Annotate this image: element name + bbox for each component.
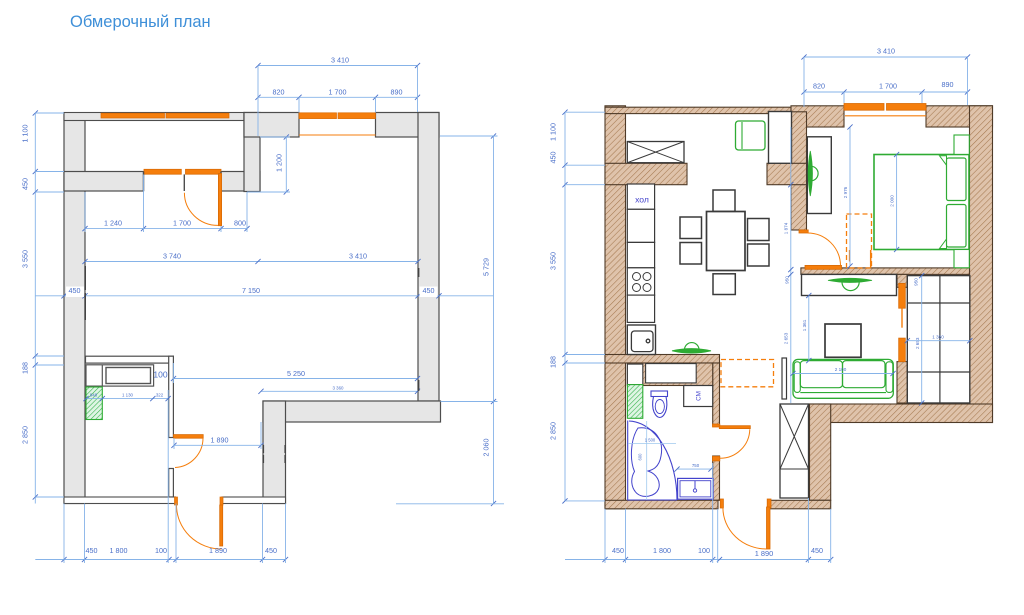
- svg-text:450: 450: [612, 546, 624, 555]
- svg-text:5 250: 5 250: [287, 369, 305, 378]
- svg-text:450: 450: [265, 546, 277, 555]
- svg-text:322: 322: [156, 393, 164, 398]
- svg-text:820: 820: [273, 88, 285, 97]
- svg-text:2 850: 2 850: [21, 426, 30, 444]
- svg-text:СМ: СМ: [696, 391, 703, 401]
- svg-text:5 729: 5 729: [482, 258, 491, 276]
- svg-text:1 800: 1 800: [110, 546, 128, 555]
- svg-text:3 410: 3 410: [877, 47, 895, 56]
- svg-text:948: 948: [90, 393, 98, 398]
- svg-text:3 740: 3 740: [163, 252, 181, 261]
- svg-text:1 500: 1 500: [645, 438, 656, 443]
- svg-text:450: 450: [69, 286, 81, 295]
- svg-text:450: 450: [423, 286, 435, 295]
- svg-text:1 130: 1 130: [122, 393, 134, 398]
- svg-text:950: 950: [914, 278, 919, 286]
- svg-text:1 700: 1 700: [879, 82, 897, 91]
- svg-text:450: 450: [86, 546, 98, 555]
- svg-text:188: 188: [549, 356, 558, 368]
- svg-text:750: 750: [692, 463, 700, 468]
- svg-text:2 850: 2 850: [549, 422, 558, 440]
- svg-text:1 800: 1 800: [653, 546, 671, 555]
- svg-text:890: 890: [942, 80, 954, 89]
- svg-text:100: 100: [155, 546, 167, 555]
- svg-text:2 100: 2 100: [835, 367, 847, 372]
- svg-text:Обмерочный план: Обмерочный план: [70, 13, 211, 31]
- svg-text:3 550: 3 550: [549, 252, 558, 270]
- svg-text:2 653: 2 653: [784, 332, 789, 344]
- svg-text:3 360: 3 360: [333, 385, 345, 390]
- svg-text:хол: хол: [635, 195, 649, 205]
- svg-text:2 060: 2 060: [482, 439, 491, 457]
- svg-text:450: 450: [21, 178, 30, 190]
- svg-text:890: 890: [391, 88, 403, 97]
- svg-text:1 700: 1 700: [329, 88, 347, 97]
- svg-text:2 976: 2 976: [843, 186, 848, 198]
- svg-text:950: 950: [785, 276, 790, 284]
- svg-text:188: 188: [21, 362, 30, 374]
- svg-text:2 000: 2 000: [890, 195, 895, 207]
- svg-text:1 240: 1 240: [104, 219, 122, 228]
- svg-text:1 890: 1 890: [209, 546, 227, 555]
- svg-text:1 890: 1 890: [211, 435, 229, 444]
- svg-text:820: 820: [813, 82, 825, 91]
- svg-text:1 361: 1 361: [802, 319, 807, 331]
- svg-text:3 550: 3 550: [21, 250, 30, 268]
- svg-text:100: 100: [698, 546, 710, 555]
- svg-text:1 100: 1 100: [549, 123, 558, 141]
- svg-text:450: 450: [549, 152, 558, 164]
- svg-text:1 890: 1 890: [755, 549, 774, 558]
- svg-text:1 100: 1 100: [21, 125, 30, 143]
- svg-text:3 410: 3 410: [331, 56, 349, 65]
- svg-text:1 700: 1 700: [173, 219, 191, 228]
- svg-text:100: 100: [153, 370, 167, 380]
- svg-text:1 200: 1 200: [275, 154, 284, 172]
- svg-text:3 410: 3 410: [349, 252, 367, 261]
- svg-text:7 150: 7 150: [242, 286, 260, 295]
- svg-text:1 360: 1 360: [932, 334, 944, 339]
- svg-text:2 653: 2 653: [915, 337, 920, 349]
- svg-text:600: 600: [638, 453, 643, 461]
- svg-text:450: 450: [811, 546, 823, 555]
- svg-text:800: 800: [234, 219, 246, 228]
- svg-text:1 874: 1 874: [784, 222, 789, 234]
